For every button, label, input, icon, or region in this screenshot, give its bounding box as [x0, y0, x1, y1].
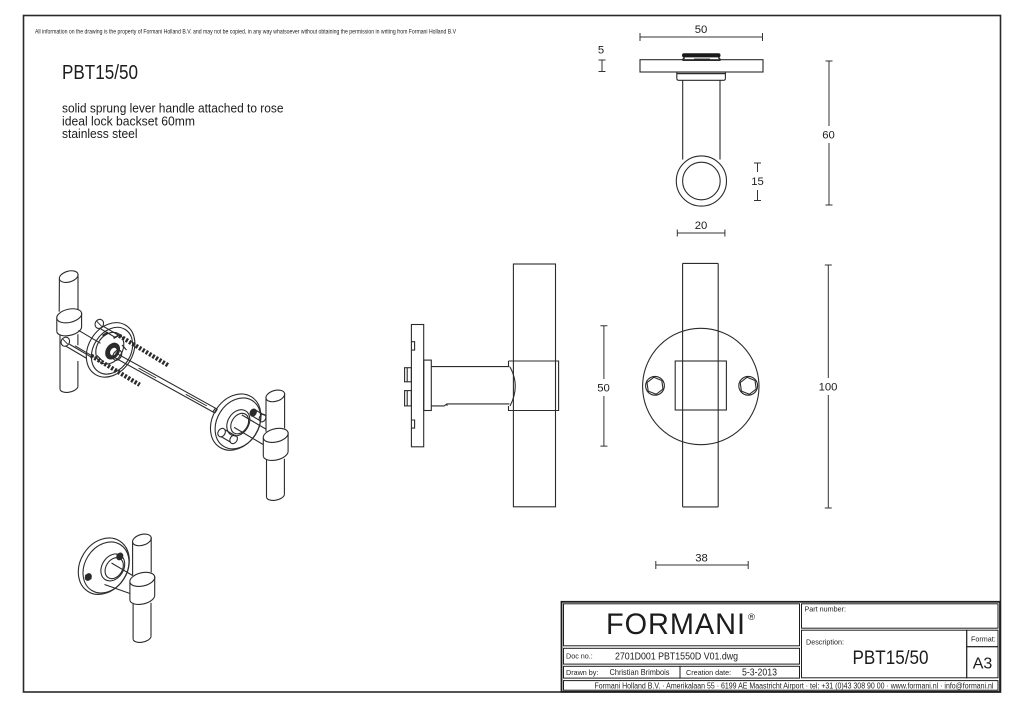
- svg-text:PBT15/50: PBT15/50: [853, 648, 929, 669]
- svg-text:Format:: Format:: [971, 635, 996, 644]
- svg-text:Part number:: Part number:: [805, 605, 847, 614]
- svg-text:®: ®: [748, 612, 755, 623]
- svg-text:Christian Brimbois: Christian Brimbois: [610, 668, 670, 677]
- svg-text:Creation date:: Creation date:: [686, 668, 731, 677]
- svg-text:2701D001 PBT1550D V01.dwg: 2701D001 PBT1550D V01.dwg: [615, 651, 738, 662]
- svg-text:FORMANI: FORMANI: [606, 608, 746, 641]
- svg-text:Drawn by:: Drawn by:: [566, 668, 598, 677]
- svg-text:Description:: Description:: [806, 638, 844, 647]
- svg-text:Doc no.:: Doc no.:: [566, 651, 593, 660]
- svg-text:A3: A3: [973, 656, 993, 673]
- svg-text:Formani Holland B.V. · Amerika: Formani Holland B.V. · Amerikalaan 55 · …: [595, 682, 994, 691]
- svg-text:5-3-2013: 5-3-2013: [742, 668, 777, 679]
